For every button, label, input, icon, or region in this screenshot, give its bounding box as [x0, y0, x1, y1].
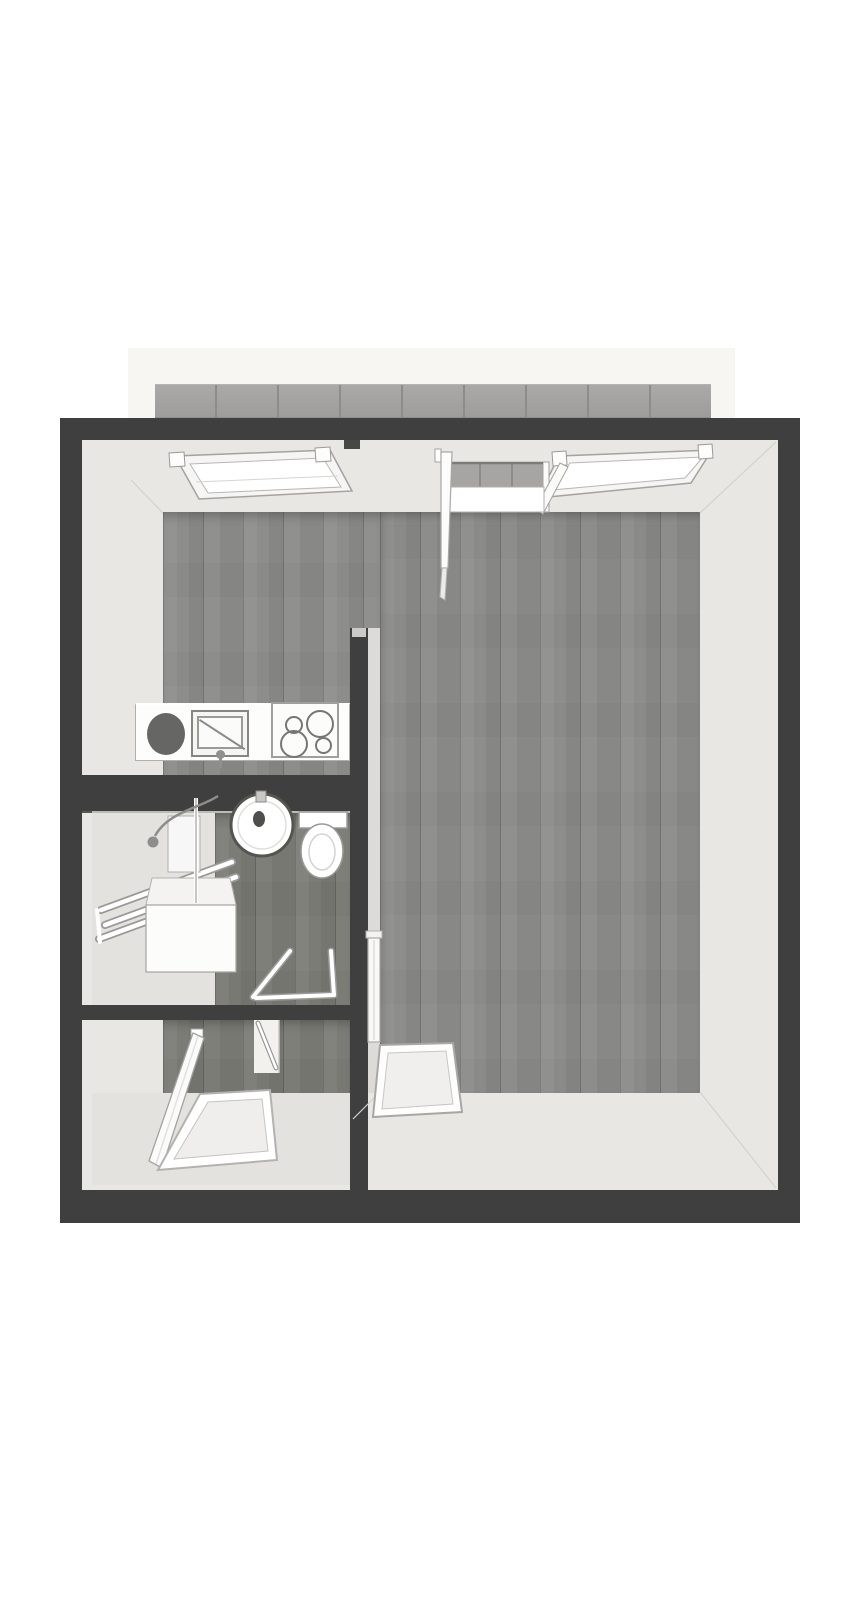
window-left	[169, 447, 352, 499]
window-left-cap-b	[315, 447, 331, 462]
balcony-door-open	[435, 449, 544, 600]
angled-fixtures-overlay	[0, 0, 867, 1600]
toilet	[299, 812, 347, 878]
balcony-view-through-door	[450, 462, 543, 487]
washbasin-round	[231, 791, 293, 856]
doormat-living-room	[373, 1043, 462, 1117]
washbasin-faucet	[256, 791, 266, 802]
bathroom-doorway-from-hall	[254, 1020, 279, 1073]
balcony-door-leaf-edge	[440, 568, 447, 600]
bathroom-cabinet	[146, 878, 236, 972]
window-left-cap-a	[169, 452, 185, 467]
bathroom-door-open	[253, 951, 334, 998]
entry-door-open	[366, 931, 382, 1042]
balcony-door-sill	[449, 487, 544, 512]
window-right	[535, 444, 713, 514]
floor-plan-canvas	[0, 0, 867, 1600]
balcony-door-hinge	[435, 449, 441, 462]
window-right-cap-b	[698, 444, 713, 459]
balcony-door-leaf	[441, 452, 452, 568]
washbasin-drain	[253, 811, 265, 827]
